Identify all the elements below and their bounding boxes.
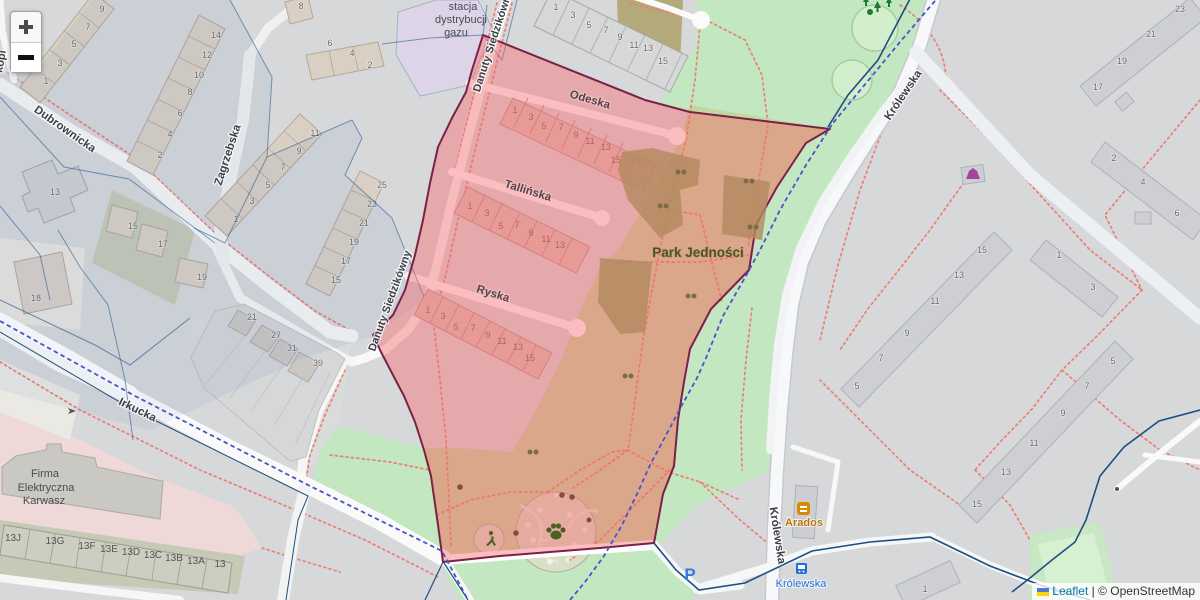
svg-text:5: 5 bbox=[586, 20, 591, 30]
svg-text:7: 7 bbox=[878, 353, 883, 363]
svg-text:gazu: gazu bbox=[444, 27, 468, 39]
svg-text:1: 1 bbox=[922, 584, 927, 594]
svg-text:13A: 13A bbox=[187, 556, 205, 567]
svg-text:19: 19 bbox=[1117, 56, 1127, 66]
svg-text:Elektryczna: Elektryczna bbox=[18, 482, 76, 494]
svg-text:2: 2 bbox=[1111, 153, 1116, 163]
svg-text:4: 4 bbox=[1140, 177, 1145, 187]
svg-text:dystrybucji: dystrybucji bbox=[435, 14, 487, 26]
svg-text:13G: 13G bbox=[46, 536, 65, 547]
svg-text:3: 3 bbox=[1090, 282, 1095, 292]
svg-text:8: 8 bbox=[298, 1, 303, 11]
svg-text:Arados: Arados bbox=[785, 517, 823, 529]
svg-text:Karwasz: Karwasz bbox=[23, 495, 65, 507]
svg-text:6: 6 bbox=[1174, 208, 1179, 218]
svg-text:stacja: stacja bbox=[449, 1, 479, 13]
svg-text:9: 9 bbox=[1060, 408, 1065, 418]
svg-text:13F: 13F bbox=[78, 541, 95, 552]
svg-text:P: P bbox=[684, 565, 695, 584]
svg-text:7: 7 bbox=[603, 25, 608, 35]
svg-text:11: 11 bbox=[930, 296, 939, 306]
svg-text:15: 15 bbox=[972, 499, 982, 509]
svg-text:25: 25 bbox=[377, 180, 387, 190]
svg-text:13: 13 bbox=[214, 559, 226, 570]
svg-text:4: 4 bbox=[349, 48, 354, 58]
svg-text:1: 1 bbox=[553, 2, 558, 12]
svg-text:Królewska: Królewska bbox=[776, 578, 828, 590]
svg-text:39: 39 bbox=[313, 358, 323, 368]
svg-text:13E: 13E bbox=[100, 544, 118, 555]
svg-text:15: 15 bbox=[977, 245, 987, 255]
svg-text:21: 21 bbox=[1146, 29, 1156, 39]
svg-text:13C: 13C bbox=[144, 550, 162, 561]
svg-text:9: 9 bbox=[904, 328, 909, 338]
svg-text:23: 23 bbox=[1175, 4, 1185, 14]
svg-text:17: 17 bbox=[1093, 82, 1103, 92]
svg-text:13J: 13J bbox=[5, 533, 21, 544]
svg-text:2: 2 bbox=[367, 60, 372, 70]
svg-text:1: 1 bbox=[1056, 250, 1061, 260]
svg-text:13B: 13B bbox=[165, 553, 183, 564]
svg-text:13D: 13D bbox=[122, 547, 140, 558]
svg-text:6: 6 bbox=[327, 38, 332, 48]
svg-text:5: 5 bbox=[1110, 356, 1115, 366]
svg-text:15: 15 bbox=[658, 56, 668, 66]
svg-text:13: 13 bbox=[1001, 467, 1011, 477]
svg-text:13: 13 bbox=[643, 43, 653, 53]
svg-text:5: 5 bbox=[854, 381, 859, 391]
svg-text:Park Jedności: Park Jedności bbox=[652, 245, 744, 260]
svg-text:11: 11 bbox=[1029, 438, 1038, 448]
svg-text:3: 3 bbox=[570, 10, 575, 20]
svg-text:9: 9 bbox=[617, 32, 622, 42]
svg-text:7: 7 bbox=[1084, 381, 1089, 391]
svg-text:Firma: Firma bbox=[31, 468, 60, 480]
svg-text:13: 13 bbox=[954, 270, 964, 280]
svg-text:11: 11 bbox=[629, 40, 638, 50]
